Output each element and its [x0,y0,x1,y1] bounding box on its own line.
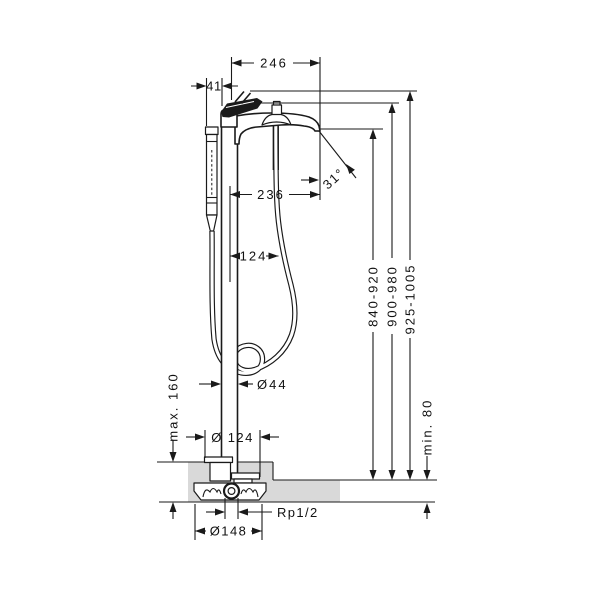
dim-236: 236 [230,186,320,282]
dim-o44-arrow-left [211,381,221,388]
dim-925-1005-arrow-bottom [407,470,414,480]
dim-rp12-label: Rp1/2 [277,505,319,520]
dim-min80-label: min. 80 [420,399,435,456]
handshower-head [206,127,219,135]
dim-246-label: 246 [260,56,288,71]
dim-41-arrow-right [222,83,232,90]
dim-246-arrow-right [310,60,320,67]
dim-max160-arrow-up [170,502,177,512]
pillar [222,126,238,474]
escutcheon-plate-left [205,457,233,463]
dim-900-980-arrow-top [389,103,396,113]
dim-246-arrow-left [232,60,242,67]
dim-41-arrow-left [197,83,207,90]
dim-max160-arrow-down [170,452,177,462]
dim-min80-arrow-up [424,503,431,513]
knob-top [272,105,282,115]
escutcheon-skirt-left [210,463,231,482]
dim-o124-arrow-right [260,434,270,441]
escutcheon-plate-right [232,473,260,479]
dim-925-1005: 925-1005 [403,91,418,480]
dim-840-920-arrow-bottom [370,470,377,480]
dim-max160-label: max. 160 [166,372,181,441]
dim-840-920-arrow-top [370,129,377,139]
dim-o148-arrow-left [195,528,205,535]
dim-min-80: min. 80 [420,399,435,519]
dim-925-1005-label: 925-1005 [403,264,418,335]
dim-900-980: 900-980 [385,103,400,480]
dim-124-arrow-right [269,253,279,260]
dim-o44: Ø44 [199,377,288,392]
dim-840-920: 840-920 [366,129,381,480]
dim-236-arrow-right [310,191,320,198]
dim-min80-arrow-down [424,470,431,480]
pillar-body [222,126,237,472]
hand-shower [206,127,219,231]
dim-900-980-arrow-bottom [389,470,396,480]
dim-rp12-arrow-right [238,509,248,516]
dim-41-label: 41 [206,79,222,94]
dim-o148: Ø148 [195,504,262,540]
drawing-svg: 246 41 236 31° [0,0,600,600]
installation-drawing: 246 41 236 31° [0,0,600,600]
dim-max-160: max. 160 [166,372,181,519]
handshower-cone [207,215,218,231]
dim-o44-label: Ø44 [257,377,288,392]
dim-900-980-label: 900-980 [385,265,400,327]
dim-236-label: 236 [257,187,285,202]
angle-31-label: 31° [320,165,348,192]
dim-840-920-label: 840-920 [366,265,381,327]
angle-31-slant-arrow [346,164,355,174]
dim-rp12-arrow-left [215,509,225,516]
dim-o124-arrow-left [195,434,205,441]
inlet-bore-inner [228,488,235,495]
dim-o124-label: Ø 124 [211,430,253,445]
handle-swing-mark-1 [235,92,244,103]
dim-o148-label: Ø148 [210,524,247,539]
dim-angle-31: 31° [301,131,356,192]
dim-o148-arrow-right [252,528,262,535]
dim-925-1005-arrow-top [407,91,414,101]
dim-o44-arrow-right [238,381,248,388]
angle-31-horiz-arrow [309,177,319,184]
dim-124-label: 124 [240,249,268,264]
